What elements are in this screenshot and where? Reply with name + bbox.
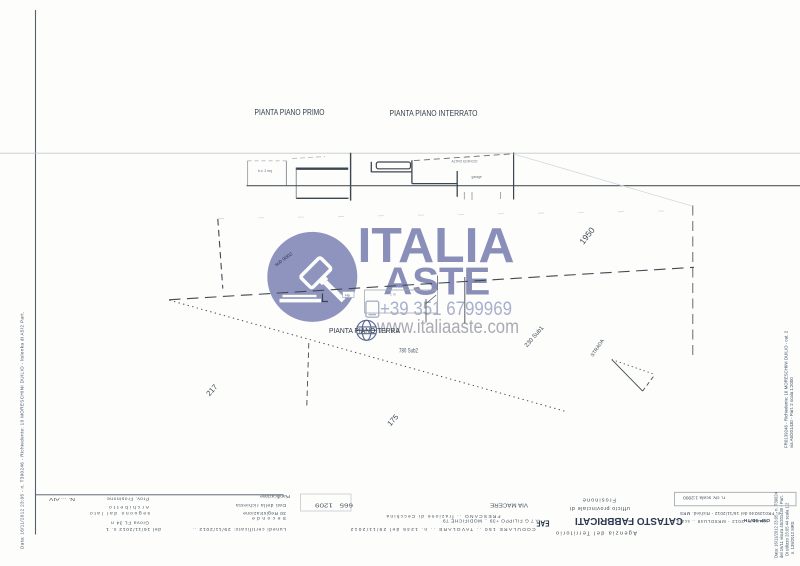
svg-text:ASTE: ASTE bbox=[383, 261, 490, 304]
svg-text:PIANTA PIANO INTERRATO: PIANTA PIANO INTERRATO bbox=[390, 109, 478, 118]
svg-text:PIANTA PIANO TERRA: PIANTA PIANO TERRA bbox=[329, 328, 400, 335]
svg-text:garage: garage bbox=[472, 175, 482, 179]
svg-text:n. 139/2012 MRS: n. 139/2012 MRS bbox=[790, 521, 795, 554]
svg-text:PIANTA PIANO PRIMO: PIANTA PIANO PRIMO bbox=[255, 108, 325, 117]
svg-text:A 7 G FILIPPO +39 .. MODIFICHE: A 7 G FILIPPO +39 .. MODIFICHE 79 bbox=[443, 517, 539, 523]
svg-text:Frosinone: Frosinone bbox=[583, 497, 616, 503]
svg-text:ALTRO EDIFICIO: ALTRO EDIFICIO bbox=[452, 160, 478, 164]
svg-text:Giova FL 34 n: Giova FL 34 n bbox=[111, 520, 149, 526]
svg-text:Dati della richiesta: Dati della richiesta bbox=[236, 502, 286, 508]
svg-text:seguono dal lato: seguono dal lato bbox=[90, 510, 150, 516]
svg-text:1 m: 1 m bbox=[390, 293, 396, 297]
svg-text:via A5/201430 - Part. 2 scala: via A5/201430 - Part. 2 scala 1:2000 bbox=[789, 377, 794, 448]
svg-text:CNP-9D/TH: CNP-9D/TH bbox=[744, 518, 770, 523]
svg-text:ufficio provinciale di: ufficio provinciale di bbox=[570, 505, 630, 511]
svg-text:Data: 16/11/2012 23:05 - n. T3: Data: 16/11/2012 23:05 - n. T390246 - Ri… bbox=[20, 312, 25, 549]
svg-text:Data: 16/11/2012 23:05 - n. T3: Data: 16/11/2012 23:05 - n. T39024 bbox=[774, 491, 779, 558]
svg-text:b.c. 2 mq: b.c. 2 mq bbox=[258, 169, 272, 173]
svg-text:780 Sub2: 780 Sub2 bbox=[399, 348, 418, 355]
svg-text:Ha: Ha bbox=[345, 293, 350, 297]
svg-text:del 16/11/2012 n. 1: del 16/11/2012 n. 1 bbox=[106, 526, 161, 532]
svg-text:Lunedi certificato: 29/11/2012: Lunedi certificato: 29/11/2012 .. bbox=[193, 526, 286, 532]
svg-text:VIA MACERE: VIA MACERE bbox=[489, 502, 528, 508]
svg-text:del 16/11 visura 45/201430 - P: del 16/11 visura 45/201430 - Part. bbox=[779, 495, 784, 558]
svg-text:CATASTO FABBRICATI: CATASTO FABBRICATI bbox=[575, 515, 683, 526]
svg-text:Pianificazione: Pianificazione bbox=[260, 493, 290, 499]
svg-text:FR0139246 - Richiedente: 10 MO: FR0139246 - Richiedente: 10 MORESCHINI D… bbox=[784, 330, 789, 448]
svg-text:N. ... AIV: N. ... AIV bbox=[48, 496, 75, 502]
svg-text:Prov. Frosinone: Prov. Frosinone bbox=[107, 495, 149, 501]
svg-text:CODULARE 150 .. TAVOLARE .. n.: CODULARE 150 .. TAVOLARE .. n. 1246 del … bbox=[350, 526, 535, 532]
svg-text:665 1209: 665 1209 bbox=[315, 502, 353, 508]
svg-text:n. FR0139246 del 16/11/2012 -: n. FR0139246 del 16/11/2012 - Richied. M… bbox=[680, 511, 780, 516]
svg-text:n. civ. scala 1:2000: n. civ. scala 1:2000 bbox=[682, 496, 725, 501]
svg-text:Di utilizzo 23:05 44 scala 1:2: Di utilizzo 23:05 44 scala 1:2 bbox=[785, 502, 790, 556]
svg-text:EAF: EAF bbox=[537, 519, 550, 529]
